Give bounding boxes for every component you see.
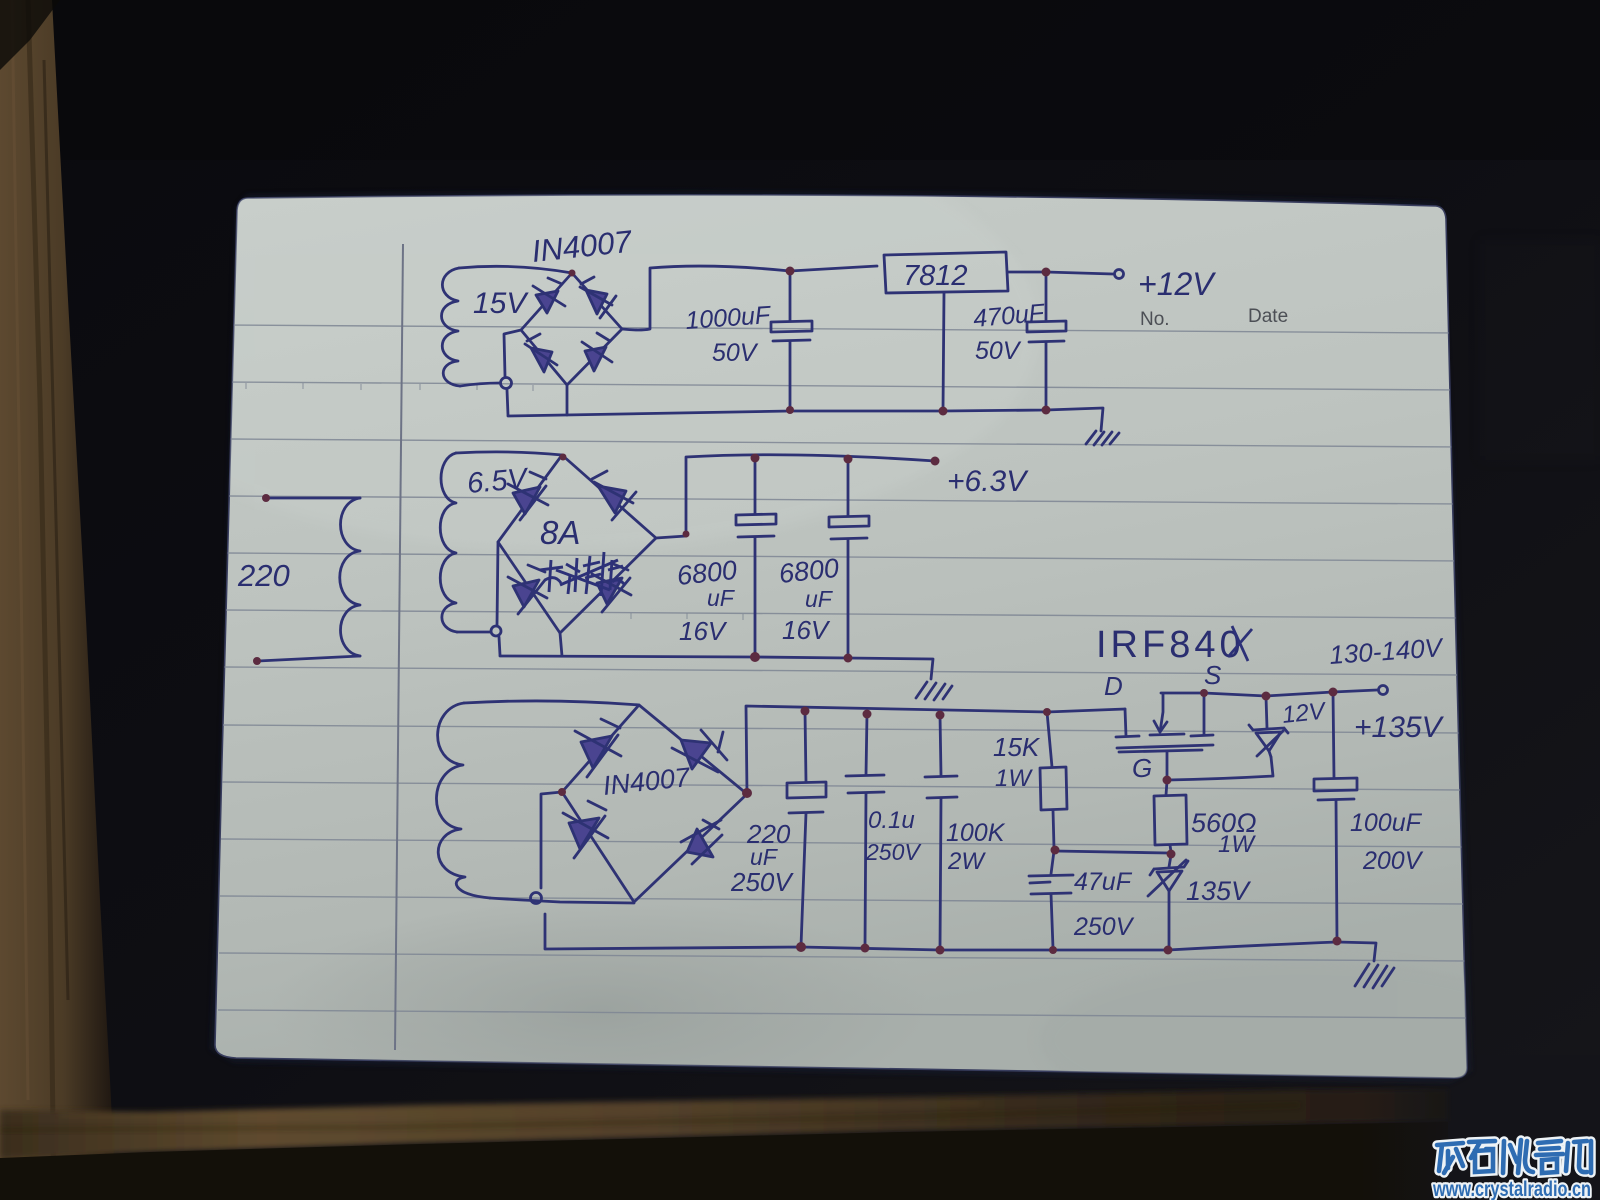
svg-text:8A: 8A xyxy=(540,514,580,551)
svg-text:G: G xyxy=(1132,753,1152,783)
svg-text:16V: 16V xyxy=(782,615,831,645)
svg-text:www.crystalradio.cn: www.crystalradio.cn xyxy=(1432,1178,1591,1200)
svg-text:100uF: 100uF xyxy=(1350,809,1423,837)
svg-text:2W: 2W xyxy=(947,848,986,875)
svg-text:0.1u: 0.1u xyxy=(868,807,915,834)
svg-text:250V: 250V xyxy=(730,867,794,897)
svg-text:12V: 12V xyxy=(1281,697,1328,729)
svg-text:6.5V: 6.5V xyxy=(466,463,531,500)
svg-text:+12V: +12V xyxy=(1138,266,1216,302)
svg-text:15V: 15V xyxy=(473,287,529,320)
svg-text:uF: uF xyxy=(707,585,736,611)
svg-text:16V: 16V xyxy=(679,616,728,646)
svg-text:D: D xyxy=(1104,671,1123,701)
svg-text:7812: 7812 xyxy=(903,260,968,292)
svg-text:50V: 50V xyxy=(975,337,1022,365)
svg-text:135V: 135V xyxy=(1186,876,1252,906)
svg-text:+135V: +135V xyxy=(1354,711,1445,744)
svg-text:6800: 6800 xyxy=(777,553,840,589)
svg-text:50V: 50V xyxy=(712,339,759,367)
svg-text:1W: 1W xyxy=(1218,831,1256,858)
svg-text:+6.3V: +6.3V xyxy=(947,465,1029,498)
svg-text:200V: 200V xyxy=(1362,847,1424,875)
svg-text:15K: 15K xyxy=(993,732,1041,762)
svg-text:Date: Date xyxy=(1248,306,1288,327)
svg-text:250V: 250V xyxy=(1073,913,1135,941)
svg-text:No.: No. xyxy=(1140,309,1170,330)
svg-text:220: 220 xyxy=(237,558,290,593)
svg-text:47uF: 47uF xyxy=(1074,868,1133,896)
svg-text:S: S xyxy=(1204,660,1222,690)
svg-text:100K: 100K xyxy=(946,819,1006,847)
svg-text:uF: uF xyxy=(805,586,834,612)
svg-text:250V: 250V xyxy=(865,839,922,865)
svg-text:IRF840: IRF840 xyxy=(1096,624,1245,666)
svg-text:1W: 1W xyxy=(995,765,1033,792)
